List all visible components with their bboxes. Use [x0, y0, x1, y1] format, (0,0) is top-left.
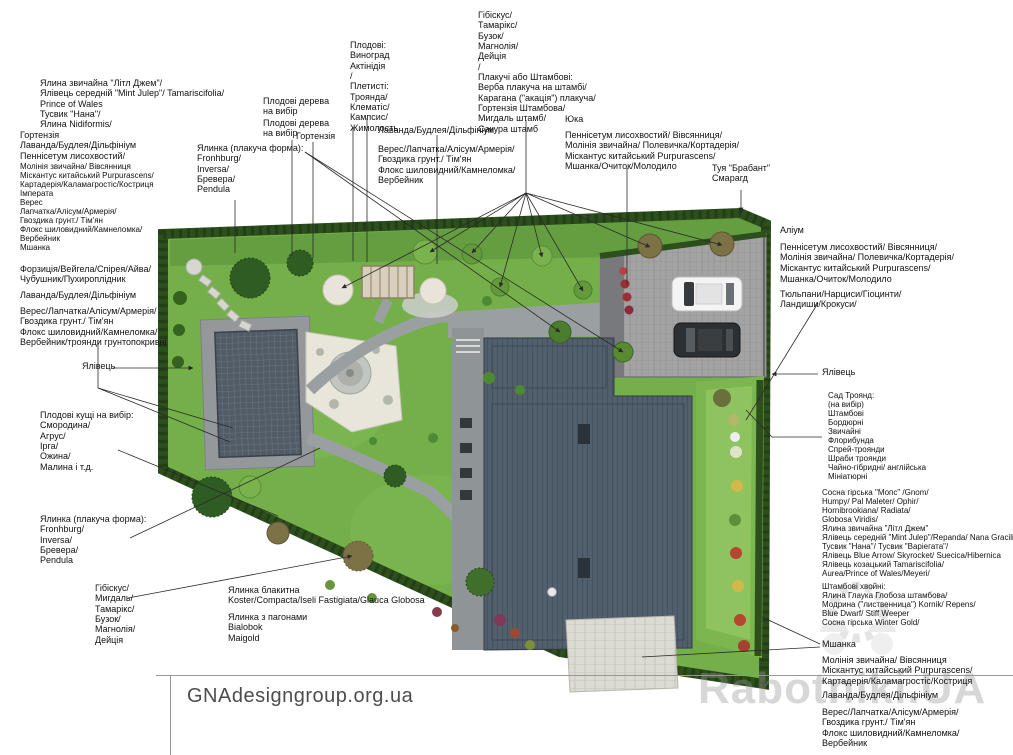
- label-grasses-center: Пеннісетум лисохвостий/ Вівсянниця/ Молі…: [565, 130, 739, 161]
- car-white: [672, 277, 742, 311]
- footer-box: GNAdesigngroup.org.ua: [170, 675, 1013, 755]
- label-moss-right: Мшанка/Очиток/Молодило: [780, 274, 892, 284]
- label-standard-conifers: Штамбові хвойні: Ялина Глаука Глобоза шт…: [822, 583, 976, 628]
- label-grasses-left: Молінія звичайна/ Вівсянниця Міскантус к…: [20, 163, 154, 253]
- terrace: [452, 328, 484, 650]
- label-heather-mid: Верес/Лапчатка/Алісум/Армерія/ Гвоздика …: [378, 144, 515, 185]
- label-conifers-right: Сосна гірська "Мопс" /Gnom/ Humpy/ Pal M…: [822, 489, 1013, 579]
- label-lavender-mid: Лаванда/Будлея/Дільфініум: [378, 125, 494, 135]
- label-yucca: Юка: [565, 114, 583, 124]
- label-shrubs-forzicia: Форзиція/Вейгела/Спірея/Айва/ Чубушник/П…: [20, 264, 151, 285]
- label-moss-bottomright: Мшанка: [822, 639, 856, 649]
- label-fruit-trees-1: Плодові дерева на вибір: [263, 96, 329, 117]
- label-hortensia-lavender-left: Гортензія Лаванда/Будлея/Дільфініум Пенн…: [20, 130, 136, 161]
- label-heather-left: Верес/Лапчатка/Алісум/Армерія/ Гвоздика …: [20, 306, 167, 347]
- label-conifers-topleft: Ялина звичайна "Літл Джем"/ Ялівець сере…: [40, 78, 224, 130]
- label-hibiscus-bottom: Гібіскус/ Мигдаль/ Тамарікс/ Бузок/ Магн…: [95, 583, 135, 645]
- label-bulbs-right: Тюльпани/Нарциси/Гіоцинти/ Ландиши/Кроку…: [780, 289, 901, 310]
- label-blue-spruce: Ялинка блакитна Koster/Compacta/Iseli Fa…: [228, 585, 425, 606]
- label-lavender-left: Лаванда/Будлея/Дільфініум: [20, 290, 136, 300]
- site-url: GNAdesigngroup.org.ua: [187, 685, 413, 708]
- grid-court: [200, 316, 314, 470]
- label-spruce-bialobok: Ялинка з пагонами Bialobok Maigold: [228, 612, 307, 643]
- chimney: [548, 588, 557, 597]
- label-moss-center: Мшанка/Очиток/Молодило: [565, 161, 677, 171]
- label-weeping-spruce-left: Ялинка (плакуча форма): Fronhburg/ Inver…: [40, 514, 146, 566]
- label-weeping-spruce-mid: Ялинка (плакуча форма): Fronhburg/ Inver…: [197, 143, 303, 195]
- label-thuja: Туя "Брабант" Смарагд: [712, 163, 770, 184]
- label-climbers-top: Плодові: Виноград Актінідія / Плетисті: …: [350, 40, 398, 133]
- label-rose-garden: Сад Троянд: (на вибір) Штамбові Бордюрні…: [828, 392, 926, 482]
- label-hortensia-mid: Гортензія: [296, 131, 335, 141]
- car-black: [674, 323, 740, 357]
- label-juniper-right: Ялівець: [822, 367, 855, 377]
- label-grasses-right: Пеннісетум лисохвостий/ Вівсянниця/ Молі…: [780, 242, 954, 273]
- label-allium: Аліум: [780, 225, 804, 235]
- label-juniper-left: Ялівець: [82, 361, 115, 371]
- label-fruit-bushes: Плодові кущі на вибір: Смородина/ Агрус/…: [40, 410, 134, 472]
- landscape-plan-sheet: Rabotniki.UA Ялина звичайна "Літл Джем"/…: [0, 0, 1013, 755]
